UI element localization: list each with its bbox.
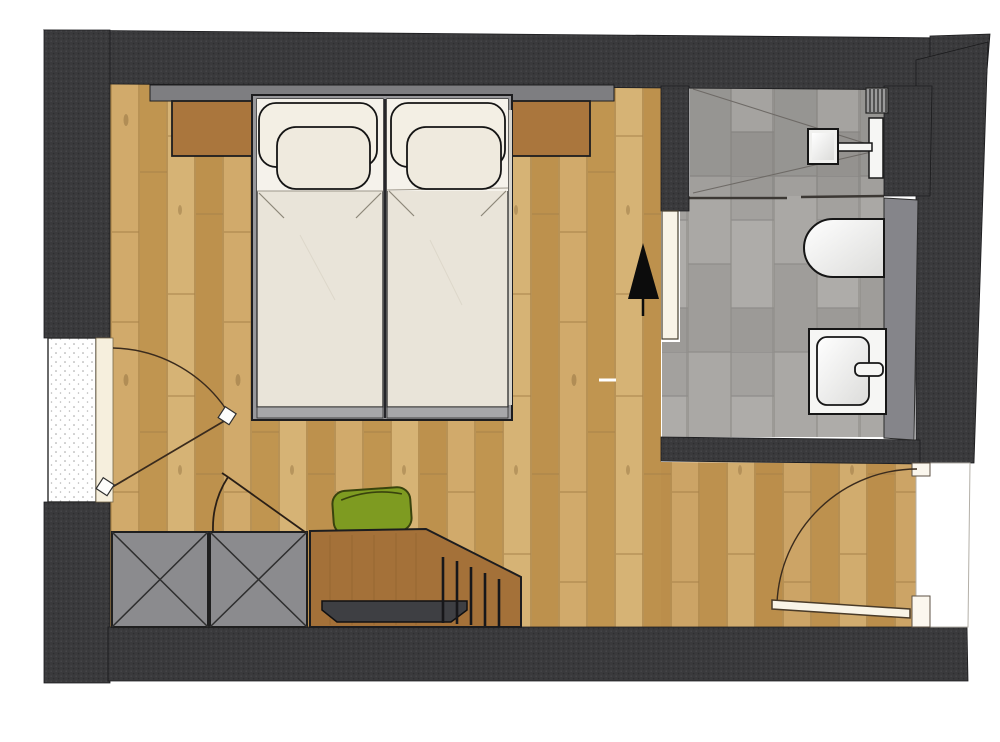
window-inner-reveal xyxy=(96,338,113,502)
bed-foot-left xyxy=(257,407,383,418)
wall-bathroom-divider xyxy=(661,86,689,211)
pillow-small-right xyxy=(407,127,501,189)
shower-head-face xyxy=(812,133,834,160)
wall-left-lower xyxy=(44,502,110,683)
bed-foot-right xyxy=(387,407,508,418)
shower-vent-grate xyxy=(866,88,888,113)
faucet xyxy=(855,363,883,376)
shower-floor-shade xyxy=(690,86,884,196)
nightstand-right xyxy=(512,101,590,156)
shower-arm xyxy=(836,143,872,151)
wall-bathroom-bottom xyxy=(661,437,920,464)
nightstand-left xyxy=(172,101,253,156)
pillow-small-left xyxy=(277,127,370,189)
window-glazing xyxy=(48,338,96,502)
wall-left-upper xyxy=(44,30,110,338)
shower-screen-right xyxy=(801,196,884,197)
bathroom-sliding-door xyxy=(662,211,678,339)
bathroom-counter xyxy=(884,198,918,440)
wall-bottom xyxy=(108,627,968,681)
floor-plan-canvas xyxy=(0,0,1000,742)
entry-jamb-bottom xyxy=(912,596,930,627)
desk-chair xyxy=(332,486,413,535)
toilet xyxy=(804,219,884,277)
wall-shower-right xyxy=(884,86,932,196)
desk-tray xyxy=(322,601,467,622)
wall-top xyxy=(44,30,952,90)
floor-plan-svg xyxy=(0,0,1000,742)
